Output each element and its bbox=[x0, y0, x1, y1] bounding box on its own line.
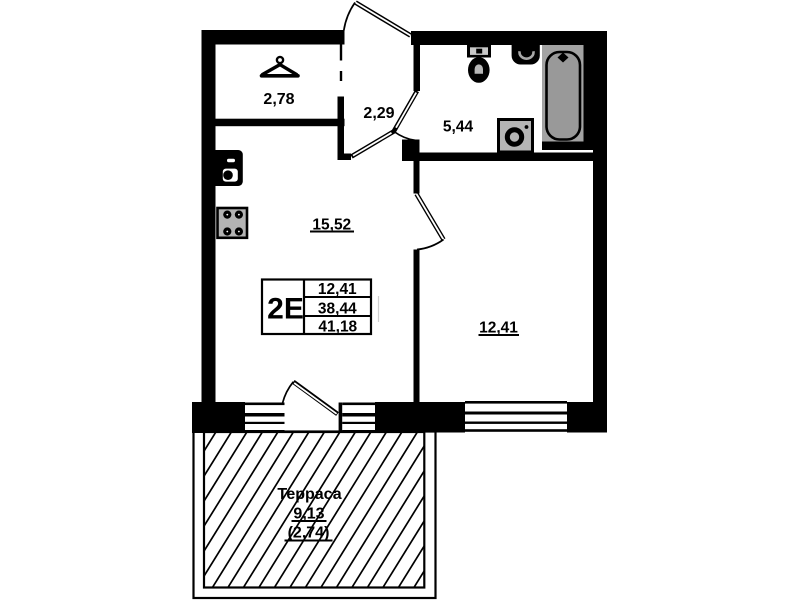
svg-text:38,44: 38,44 bbox=[318, 300, 357, 317]
svg-text:5,44: 5,44 bbox=[443, 119, 474, 136]
svg-text:2,78: 2,78 bbox=[263, 91, 294, 108]
svg-text:9,13: 9,13 bbox=[293, 506, 324, 523]
svg-text:12,41: 12,41 bbox=[318, 281, 357, 298]
svg-text:2,29: 2,29 bbox=[363, 105, 394, 122]
svg-text:(2,74): (2,74) bbox=[288, 525, 330, 542]
svg-text:2E: 2E bbox=[267, 293, 304, 326]
svg-text:41,18: 41,18 bbox=[318, 318, 357, 335]
svg-text:Терраса: Терраса bbox=[277, 486, 341, 503]
svg-text:12,41: 12,41 bbox=[479, 320, 518, 337]
